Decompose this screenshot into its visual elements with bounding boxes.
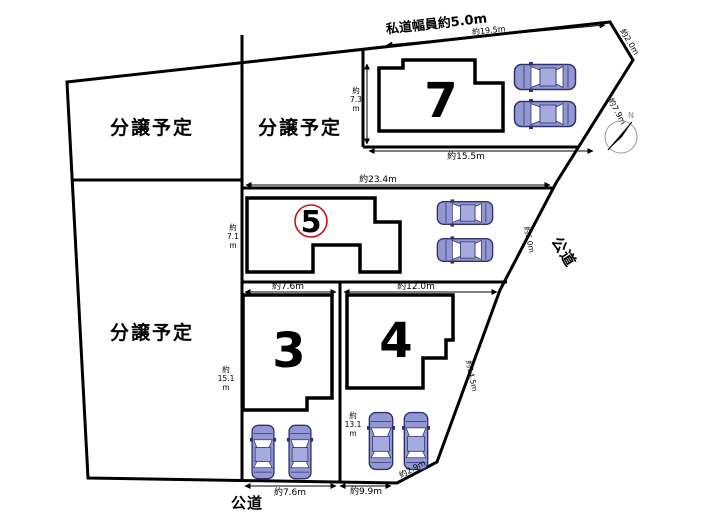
measure-bottom-w2: 約9.9m <box>350 485 382 497</box>
road-label-public-right: 公道 <box>548 234 580 271</box>
road-label-public-bottom: 公道 <box>231 494 263 512</box>
house-5-shape <box>247 198 400 272</box>
svg-text:約: 約 <box>222 364 230 374</box>
measure-lot4-width: 約12.0m <box>397 280 435 292</box>
car-icon <box>287 425 313 478</box>
car-icon <box>367 413 395 470</box>
lot5-number: 5 <box>301 205 322 240</box>
svg-text:約: 約 <box>229 222 237 232</box>
lot4-number: 4 <box>379 313 412 369</box>
car-icon <box>250 425 276 478</box>
measure-edge-e3: 約14.5m <box>464 359 480 392</box>
plot-map: 分譲予定 分譲予定 分譲予定 7 3 4 5 私道幅員約5.0m 公道 公道 約… <box>0 0 705 525</box>
parcel-label-sale-mid-left: 分譲予定 <box>110 321 194 344</box>
lot7-number: 7 <box>424 73 457 129</box>
car-icon <box>437 236 492 263</box>
car-icon <box>402 413 430 470</box>
compass-north-label: N <box>628 111 634 120</box>
measure-strip-width: 約23.4m <box>359 173 397 185</box>
svg-text:m: m <box>352 104 359 113</box>
lot3-number: 3 <box>272 323 305 379</box>
svg-text:約: 約 <box>349 410 357 420</box>
measure-edge-e2: 約6.0m <box>522 225 537 253</box>
svg-text:約: 約 <box>352 85 360 95</box>
measure-lot5-depth: 約 7.1 m <box>227 222 239 250</box>
svg-text:13.1: 13.1 <box>345 420 362 429</box>
plot-map-page: 分譲予定 分譲予定 分譲予定 7 3 4 5 私道幅員約5.0m 公道 公道 約… <box>0 0 705 525</box>
measure-lot7-depth: 約 7.3 m <box>350 85 362 113</box>
measure-lot3-width: 約7.6m <box>272 280 304 292</box>
measure-lot4-depth: 約 13.1 m <box>345 410 362 438</box>
measure-bottom-w1: 約7.6m <box>274 486 306 498</box>
svg-text:15.1: 15.1 <box>218 374 235 383</box>
car-icon <box>437 199 492 226</box>
svg-text:7.1: 7.1 <box>227 232 239 241</box>
parcel-label-sale-top-left: 分譲予定 <box>110 116 194 139</box>
svg-text:m: m <box>349 429 356 438</box>
svg-text:m: m <box>222 383 229 392</box>
car-icon <box>515 62 576 92</box>
parcel-label-sale-top-mid: 分譲予定 <box>258 116 342 139</box>
car-icon <box>515 99 576 129</box>
svg-text:7.3: 7.3 <box>350 95 362 104</box>
measure-lot3-depth: 約 15.1 m <box>218 364 235 392</box>
measure-lot7-width: 約15.5m <box>447 150 485 162</box>
svg-text:m: m <box>229 241 236 250</box>
